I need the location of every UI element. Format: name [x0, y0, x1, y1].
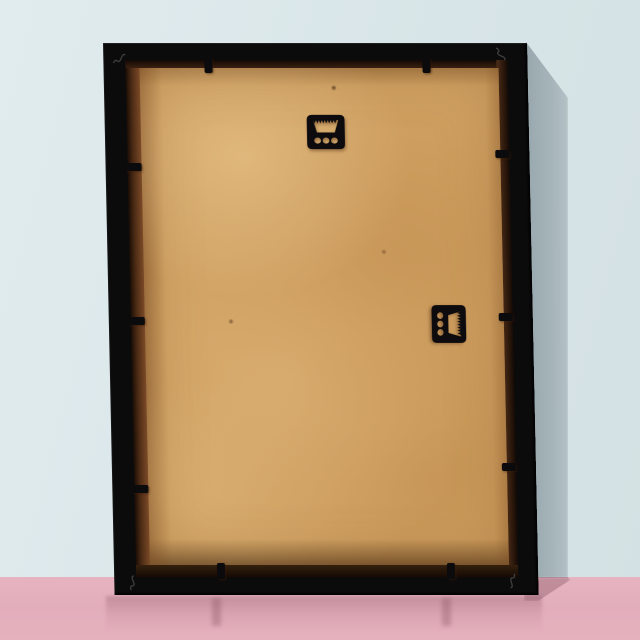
retainer-tab-left	[126, 163, 142, 171]
retainer-tab-bottom	[217, 563, 225, 579]
retainer-tab-right	[499, 313, 513, 321]
sawtooth-hanger-icon	[304, 113, 347, 151]
retainer-tab-left	[129, 317, 145, 325]
corner-joint-mark	[504, 573, 524, 592]
floor-reflection	[106, 596, 542, 638]
retainer-tab-right	[495, 150, 509, 158]
sawtooth-hanger-rotated-icon	[425, 303, 468, 341]
frame-rabbet-bottom	[136, 565, 518, 577]
retainer-tab-top	[422, 57, 430, 73]
retainer-tab-top	[204, 57, 212, 73]
retainer-tab-right	[502, 463, 516, 471]
retainer-tab-bottom	[447, 563, 455, 579]
corner-joint-mark	[111, 50, 127, 62]
corner-joint-mark	[497, 46, 509, 62]
frame-rabbet-top	[125, 60, 507, 68]
tab-reflection	[212, 598, 221, 626]
picture-frame-back	[103, 43, 539, 595]
tab-reflection	[442, 598, 451, 626]
scene	[0, 0, 640, 640]
retainer-tab-left	[132, 485, 148, 493]
